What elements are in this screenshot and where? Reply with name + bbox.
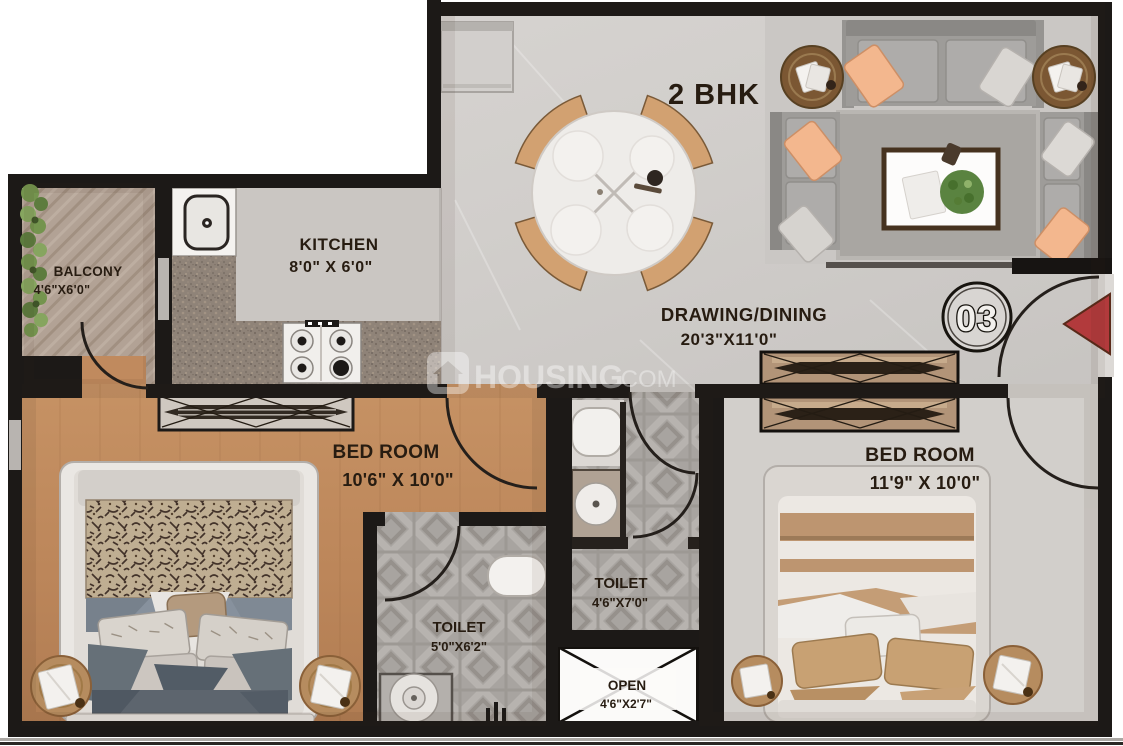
svg-text:4'6"X2'7": 4'6"X2'7" [600, 697, 652, 711]
svg-text:OPEN: OPEN [608, 678, 646, 693]
svg-text:4'6"X7'0": 4'6"X7'0" [592, 595, 648, 610]
svg-text:TOILET: TOILET [432, 619, 485, 636]
svg-text:8'0" X 6'0": 8'0" X 6'0" [289, 259, 372, 276]
svg-text:5'0"X6'2": 5'0"X6'2" [431, 639, 487, 654]
svg-text:2 BHK: 2 BHK [668, 79, 760, 111]
svg-text:TOILET: TOILET [594, 575, 647, 592]
svg-text:03: 03 [956, 298, 998, 339]
svg-text:BED ROOM: BED ROOM [333, 442, 440, 463]
svg-text:11'9" X 10'0": 11'9" X 10'0" [870, 473, 981, 493]
svg-text:BED ROOM: BED ROOM [865, 444, 975, 466]
svg-text:DRAWING/DINING: DRAWING/DINING [661, 304, 827, 325]
svg-text:10'6" X 10'0": 10'6" X 10'0" [342, 470, 454, 490]
svg-text:KITCHEN: KITCHEN [299, 235, 378, 254]
svg-text:BALCONY: BALCONY [54, 264, 123, 279]
svg-text:.COM: .COM [614, 366, 677, 393]
svg-text:4'6"X6'0": 4'6"X6'0" [34, 283, 91, 297]
svg-text:20'3"X11'0": 20'3"X11'0" [681, 330, 778, 349]
svg-text:HOUSING: HOUSING [474, 359, 623, 395]
